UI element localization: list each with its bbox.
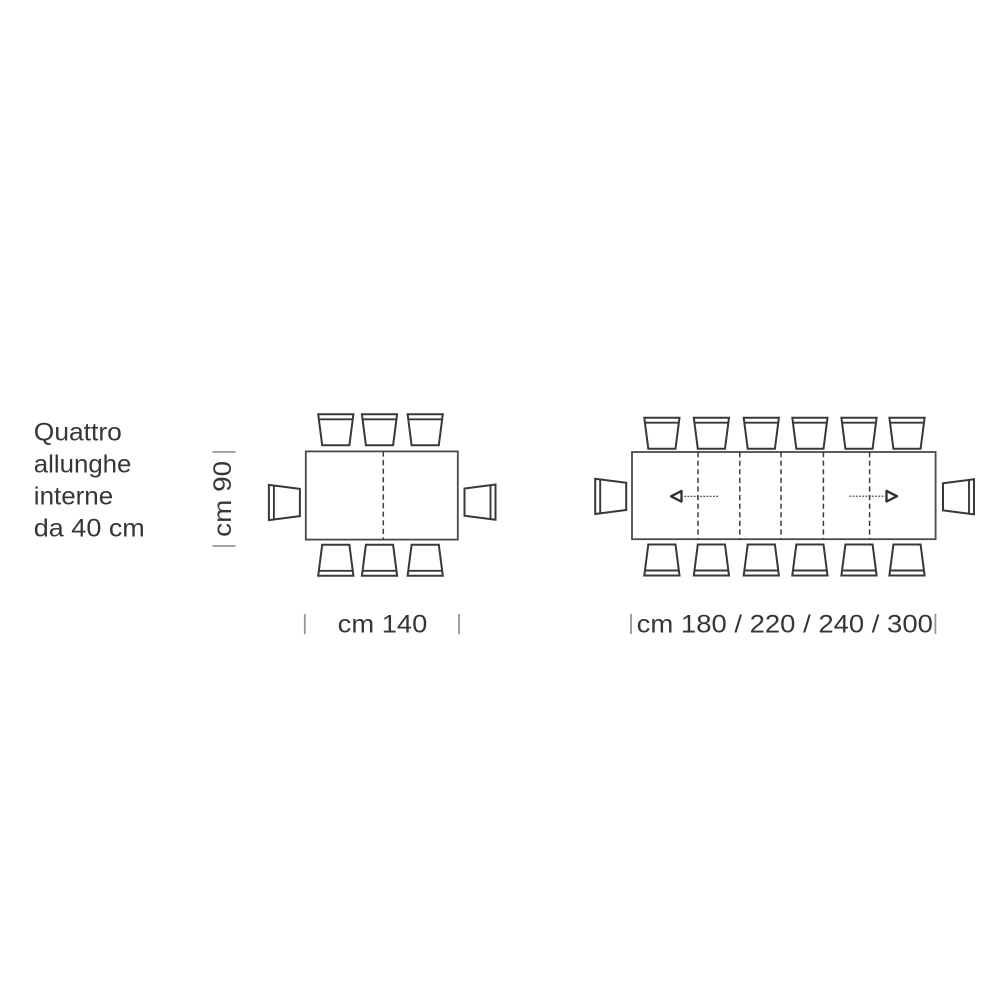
svg-text:cm 90: cm 90: [209, 461, 237, 537]
svg-text:cm 180 / 220 / 240 / 300: cm 180 / 220 / 240 / 300: [637, 611, 933, 639]
svg-text:da 40 cm: da 40 cm: [34, 515, 145, 543]
svg-text:allunghe: allunghe: [34, 451, 132, 479]
svg-text:interne: interne: [34, 483, 113, 511]
svg-text:cm 140: cm 140: [338, 611, 428, 639]
svg-text:Quattro: Quattro: [34, 419, 122, 447]
